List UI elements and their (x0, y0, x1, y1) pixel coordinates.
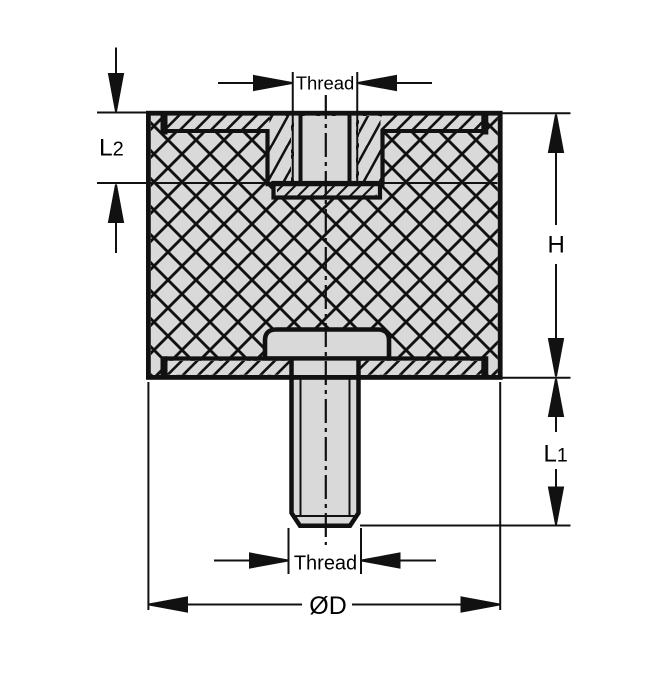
svg-text:Thread: Thread (296, 73, 355, 94)
svg-text:Thread: Thread (294, 553, 357, 575)
svg-text:L1: L1 (544, 441, 568, 468)
svg-text:H: H (548, 232, 565, 259)
svg-text:L2: L2 (99, 135, 124, 162)
svg-text:ØD: ØD (309, 592, 347, 620)
